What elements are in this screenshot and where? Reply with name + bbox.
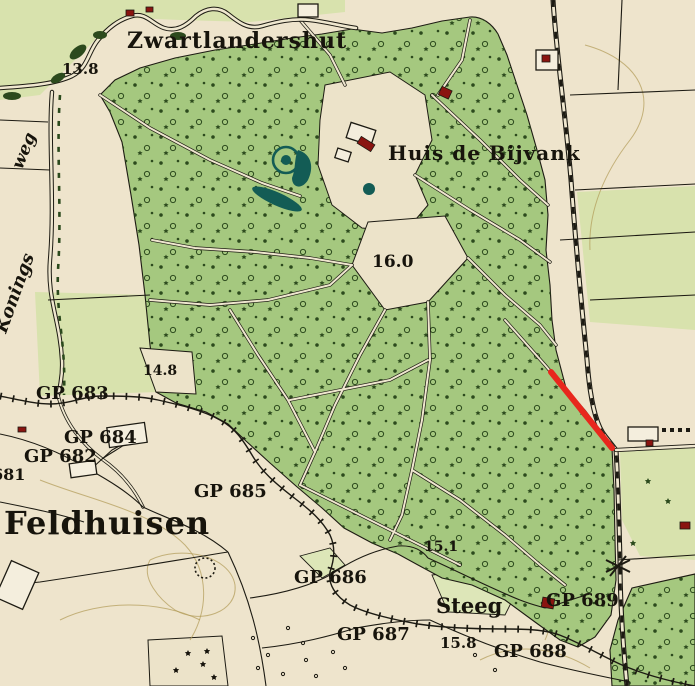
label-steeg: Steeg [436, 593, 503, 618]
estate-pond [363, 183, 375, 195]
label-gp-686: GP 686 [294, 567, 367, 588]
label-gp-688: GP 688 [494, 641, 567, 662]
topographic-map: Zwartlandershut 13.8 weg Konings Huis de… [0, 0, 695, 686]
label-elev-14-8: 14.8 [143, 363, 177, 379]
label-zwartlandershut: Zwartlandershut [127, 28, 347, 54]
label-gp-685: GP 685 [194, 481, 267, 502]
label-gp-687: GP 687 [337, 624, 410, 645]
label-feldhuisen: Feldhuisen [4, 504, 210, 542]
label-gp-689: GP 689 [546, 590, 619, 611]
label-gp-683: GP 683 [36, 383, 109, 404]
label-elev-16-0: 16.0 [372, 252, 414, 272]
map-canvas: Zwartlandershut 13.8 weg Konings Huis de… [0, 0, 695, 686]
label-elev-15-8: 15.8 [440, 634, 477, 652]
label-huis-de-bijvank: Huis de Bijvank [388, 141, 581, 165]
label-elev-13-8: 13.8 [62, 60, 99, 78]
label-gp-682: GP 682 [24, 446, 97, 467]
label-gp-681-fragment: 681 [0, 465, 25, 484]
label-elev-15-1: 15.1 [424, 539, 458, 555]
label-gp-684: GP 684 [64, 427, 137, 448]
